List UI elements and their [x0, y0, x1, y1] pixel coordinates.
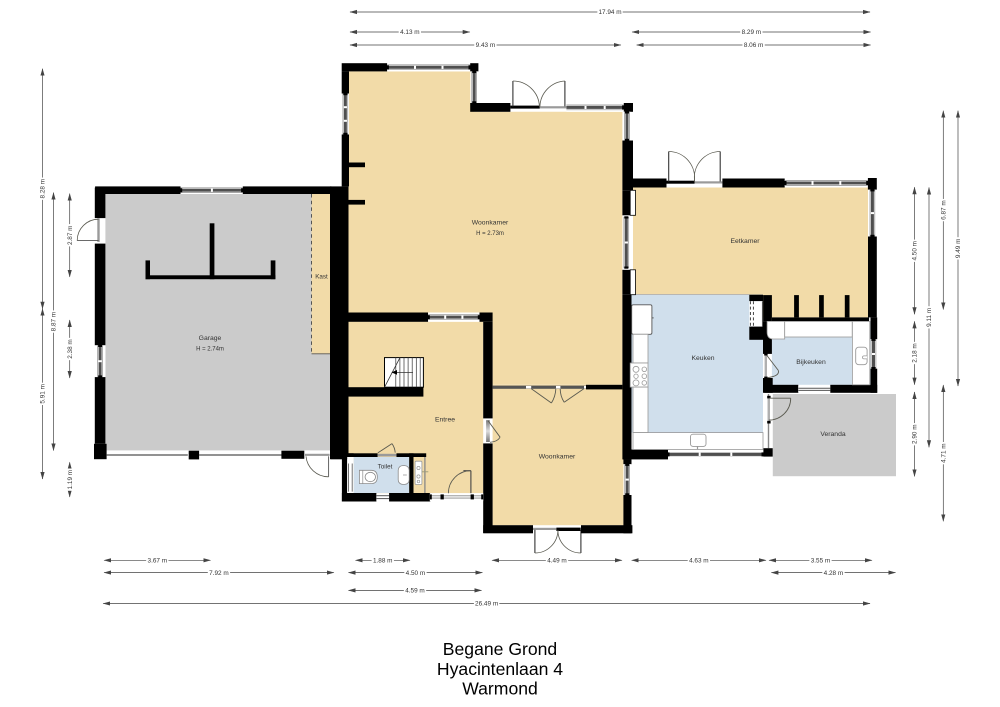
- svg-text:8.29 m: 8.29 m: [742, 29, 762, 36]
- svg-text:2.18 m: 2.18 m: [912, 343, 919, 363]
- svg-text:4.50 m: 4.50 m: [912, 241, 919, 261]
- svg-text:8.06 m: 8.06 m: [744, 42, 764, 49]
- svg-text:3.55 m: 3.55 m: [811, 558, 831, 565]
- svg-text:1.88 m: 1.88 m: [373, 558, 393, 565]
- svg-text:9.43 m: 9.43 m: [476, 42, 496, 49]
- svg-text:8.28 m: 8.28 m: [40, 179, 47, 199]
- svg-text:Eetkamer: Eetkamer: [730, 238, 760, 245]
- svg-text:Begane Grond: Begane Grond: [443, 639, 557, 659]
- svg-text:Woonkamer: Woonkamer: [472, 220, 509, 227]
- svg-text:2.38 m: 2.38 m: [67, 339, 74, 359]
- svg-text:4.59 m: 4.59 m: [405, 588, 425, 595]
- svg-text:Hyacintenlaan 4: Hyacintenlaan 4: [437, 659, 563, 679]
- svg-text:3.67 m: 3.67 m: [148, 558, 168, 565]
- svg-text:Entree: Entree: [435, 417, 455, 424]
- svg-text:8.87 m: 8.87 m: [51, 312, 58, 332]
- svg-text:Toilet: Toilet: [378, 464, 393, 471]
- svg-text:4.50 m: 4.50 m: [406, 570, 426, 577]
- svg-text:Kast: Kast: [315, 274, 328, 281]
- svg-text:9.49 m: 9.49 m: [955, 239, 962, 259]
- svg-text:7.92 m: 7.92 m: [209, 570, 229, 577]
- svg-text:2.90 m: 2.90 m: [912, 424, 919, 444]
- svg-text:6.87 m: 6.87 m: [941, 200, 948, 220]
- svg-text:4.28 m: 4.28 m: [824, 570, 844, 577]
- svg-text:9.11 m: 9.11 m: [926, 308, 933, 327]
- svg-text:17.94 m: 17.94 m: [598, 9, 621, 16]
- svg-text:26.49 m: 26.49 m: [475, 601, 498, 608]
- svg-text:4.13 m: 4.13 m: [400, 29, 420, 36]
- svg-text:Warmond: Warmond: [462, 679, 538, 699]
- svg-text:2.87 m: 2.87 m: [67, 225, 74, 245]
- svg-text:4.49 m: 4.49 m: [547, 558, 567, 565]
- svg-text:Garage: Garage: [199, 335, 222, 342]
- svg-text:H = 2.73m: H = 2.73m: [476, 231, 504, 237]
- svg-text:H = 2.74m: H = 2.74m: [196, 347, 224, 353]
- svg-text:Veranda: Veranda: [820, 431, 846, 438]
- svg-text:4.71 m: 4.71 m: [941, 443, 948, 463]
- svg-text:1.19 m: 1.19 m: [67, 470, 74, 490]
- svg-text:Bijkeuken: Bijkeuken: [796, 359, 826, 366]
- svg-text:Keuken: Keuken: [691, 355, 714, 362]
- svg-text:4.63 m: 4.63 m: [689, 558, 709, 565]
- svg-text:Woonkamer: Woonkamer: [539, 454, 576, 461]
- svg-text:5.91 m: 5.91 m: [40, 384, 47, 404]
